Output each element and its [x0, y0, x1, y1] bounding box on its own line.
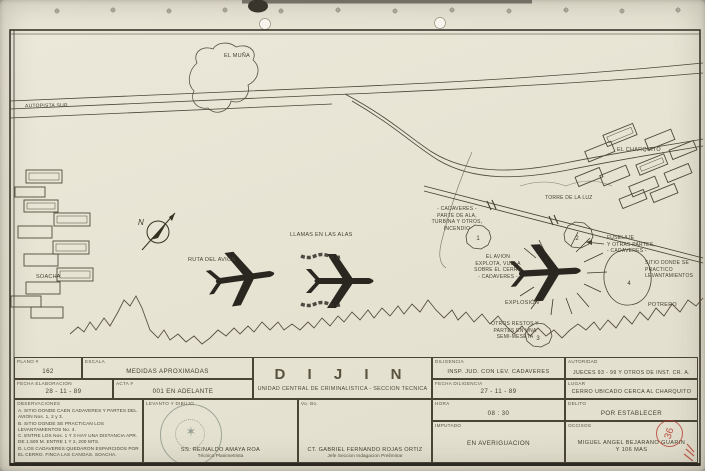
dijin-title: D I J I N [254, 366, 431, 383]
cell-imputado: IMPUTADO EN AVERIGUACION [432, 421, 565, 463]
cell-autoridad: AUTORIDAD JUECES 93 - 99 Y OTROS DE INST… [565, 357, 698, 379]
cell-dijin: D I J I N UNIDAD CENTRAL DE CRIMINALISTI… [253, 357, 432, 399]
cell-delito: DELITO POR ESTABLECER [565, 399, 698, 421]
scanned-photo-background: 1 2 3 4 [0, 0, 705, 471]
field-value-lugar: CERRO UBICADO CERCA AL CHARQUITO [566, 389, 697, 396]
field-label-occisos: OCCISOS [568, 423, 591, 428]
field-value-fecha-diligencia: 27 - 11 - 89 [433, 388, 564, 396]
title-block: PLANO # 162 ESCALA MEDIDAS APROXIMADAS F… [0, 0, 705, 471]
field-value-fecha-elaboracion: 28 - 11 - 89 [15, 388, 112, 396]
cell-plano: PLANO # 162 [14, 357, 82, 379]
field-value-diligencia: INSP. JUD. CON LEV. CADAVERES [433, 369, 564, 376]
cell-hora: HORA 08 : 30 [432, 399, 565, 421]
cell-acta: ACTA # 001 EN ADELANTE [113, 379, 253, 399]
field-label-acta: ACTA # [116, 381, 133, 386]
field-label-imputado: IMPUTADO [435, 423, 461, 428]
cell-fecha-elaboracion: FECHA ELABORACION 28 - 11 - 89 [14, 379, 113, 399]
field-label-fecha-elaboracion: FECHA ELABORACION [17, 381, 72, 386]
list-item: D. LOS CADAVERES QUEDARON ESPARCIDOS POR… [18, 446, 140, 459]
cell-levanto-dibujo: LEVANTO Y DIBUJO SS. REINALDO AMAYA ROA … [143, 399, 298, 463]
field-label-diligencia: DILIGENCIA [435, 359, 464, 364]
field-label-observaciones: OBSERVACIONES [17, 401, 60, 406]
cell-escala: ESCALA MEDIDAS APROXIMADAS [82, 357, 253, 379]
field-label-vobo: Vo. Bo. [301, 401, 318, 406]
dijin-subtitle: UNIDAD CENTRAL DE CRIMINALISTICA - SECCI… [254, 386, 431, 392]
signature-name-vobo: CT. GABRIEL FERNANDO ROJAS ORTIZ [299, 447, 431, 453]
cell-observaciones: OBSERVACIONES A. SITIO DONDE CAEN CADAVE… [14, 399, 143, 463]
cell-vobo: Vo. Bo. CT. GABRIEL FERNANDO ROJAS ORTIZ… [298, 399, 432, 463]
list-item: B. SITIO DONDE SE PRACTICAN LOS LEVANTAM… [18, 421, 140, 434]
cell-lugar: LUGAR CERRO UBICADO CERCA AL CHARQUITO [565, 379, 698, 399]
field-label-lugar: LUGAR [568, 381, 585, 386]
field-value-hora: 08 : 30 [433, 410, 564, 418]
title-block-bottom-rule [10, 463, 700, 466]
red-stamp-number: 36 [663, 427, 677, 441]
field-value-delito: POR ESTABLECER [566, 410, 697, 418]
field-label-autoridad: AUTORIDAD [568, 359, 598, 364]
field-label-delito: DELITO [568, 401, 586, 406]
list-item: A. SITIO DONDE CAEN CADAVERES Y PARTES D… [18, 408, 140, 421]
signature-name-levanto: SS. REINALDO AMAYA ROA [144, 447, 297, 453]
field-label-hora: HORA [435, 401, 449, 406]
cell-fecha-diligencia: FECHA DILIGENCIA 27 - 11 - 89 [432, 379, 565, 399]
red-number-stamp: 36 [656, 420, 683, 447]
signature-role-levanto: Técnico Planimetrista [144, 454, 297, 459]
signature-role-vobo: Jefe Seccion Indagacion Preliminar [299, 454, 431, 459]
field-value-autoridad: JUECES 93 - 99 Y OTROS DE INST. CR. A. [566, 370, 697, 377]
field-value-imputado: EN AVERIGUACION [433, 440, 564, 448]
field-value-plano: 162 [15, 368, 81, 376]
field-label-fecha-diligencia: FECHA DILIGENCIA [435, 381, 482, 386]
field-value-acta: 001 EN ADELANTE [114, 388, 252, 396]
field-value-escala: MEDIDAS APROXIMADAS [83, 368, 252, 376]
cell-diligencia: DILIGENCIA INSP. JUD. CON LEV. CADAVERES [432, 357, 565, 379]
list-item: C. ENTRE LOS Nos. 1 Y 3 HAY UNA DISTANCI… [18, 433, 140, 446]
observaciones-list: A. SITIO DONDE CAEN CADAVERES Y PARTES D… [18, 408, 140, 458]
field-label-escala: ESCALA [85, 359, 105, 364]
field-label-plano: PLANO # [17, 359, 39, 364]
field-label-levanto: LEVANTO Y DIBUJO [146, 401, 194, 406]
